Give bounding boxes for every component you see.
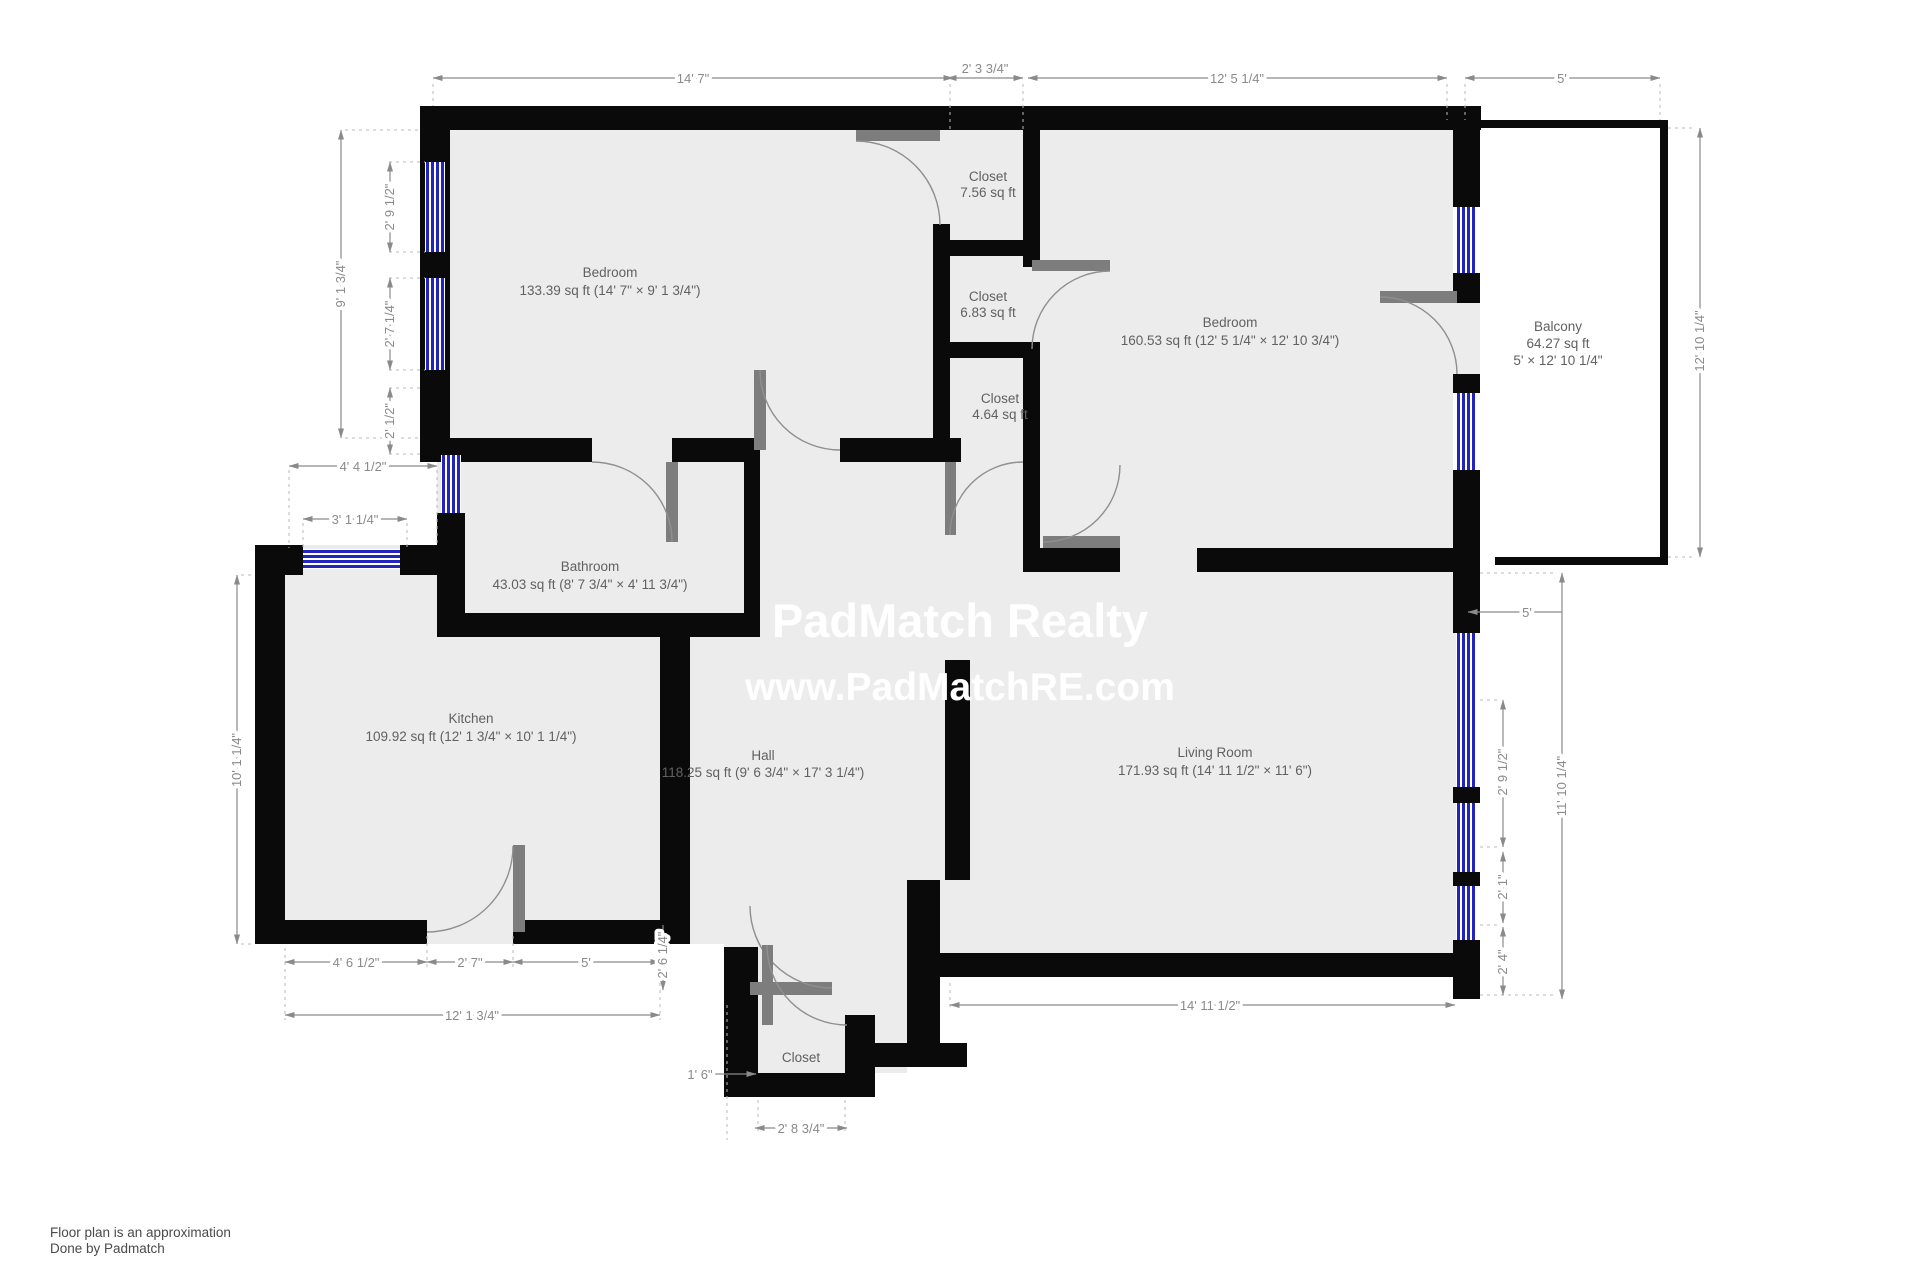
window-icon: [1456, 886, 1477, 940]
dim-right-living-h: 11' 10 1/4": [1554, 755, 1569, 816]
svg-text:Closet: Closet: [969, 169, 1008, 184]
dim-bottom-kitchen1: 4' 6 1/2": [333, 955, 380, 970]
window-icon: [441, 455, 461, 513]
footer: Floor plan is an approximation Done by P…: [50, 1225, 231, 1256]
dim-right-win3: 2' 4": [1495, 949, 1510, 975]
watermark-line1: PadMatch Realty: [772, 594, 1148, 647]
watermark-line2: www.PadMatchRE.com: [744, 666, 1175, 709]
dim-right-balcony-w: 5': [1522, 605, 1532, 620]
room-label-entry-closet: Closet: [782, 1050, 821, 1065]
dim-bottom-kitchen-total: 12' 1 3/4": [445, 1008, 499, 1023]
svg-text:Balcony: Balcony: [1534, 319, 1582, 334]
svg-text:109.92 sq ft (12' 1 3/4" × 10': 109.92 sq ft (12' 1 3/4" × 10' 1 1/4"): [365, 729, 576, 744]
svg-text:Closet: Closet: [782, 1050, 821, 1065]
dim-bottom-closet: 2' 8 3/4": [778, 1121, 825, 1136]
window-icon: [425, 278, 445, 370]
svg-text:133.39 sq ft (14' 7" × 9' 1 3/: 133.39 sq ft (14' 7" × 9' 1 3/4"): [520, 283, 701, 298]
svg-text:5' × 12' 10 1/4": 5' × 12' 10 1/4": [1513, 353, 1602, 368]
window-icon: [425, 162, 445, 252]
dim-left-bedroom1-h: 9' 1 3/4": [333, 260, 348, 307]
svg-text:Closet: Closet: [981, 391, 1020, 406]
dim-bottom-step: 2' 6 1/4": [655, 931, 670, 978]
svg-text:43.03 sq ft (8' 7 3/4" × 4' 11: 43.03 sq ft (8' 7 3/4" × 4' 11 3/4"): [493, 577, 688, 592]
dim-right-balcony-h: 12' 10 1/4": [1692, 310, 1707, 372]
svg-text:6.83 sq ft: 6.83 sq ft: [960, 305, 1016, 320]
floor-plan-canvas: 14' 7" 2' 3 3/4" 12' 5 1/4" 5' 9' 1 3/4"…: [0, 0, 1920, 1280]
dim-left-win1: 2' 9 1/2": [382, 183, 397, 230]
window-icon: [303, 549, 400, 569]
svg-text:171.93 sq ft (14' 11 1/2" × 11: 171.93 sq ft (14' 11 1/2" × 11' 6"): [1118, 763, 1312, 778]
svg-text:118.25 sq ft (9' 6 3/4" × 17': 118.25 sq ft (9' 6 3/4" × 17' 3 1/4"): [662, 765, 865, 780]
dim-left-alcove2: 3' 1 1/4": [332, 512, 379, 527]
svg-text:7.56 sq ft: 7.56 sq ft: [960, 185, 1016, 200]
svg-text:Bedroom: Bedroom: [1203, 315, 1258, 330]
dim-left-win2: 2' 7 1/4": [382, 300, 397, 347]
dim-bottom-entry: 1' 6": [687, 1067, 713, 1082]
window-icon: [1456, 207, 1477, 273]
dim-top-bedroom2: 12' 5 1/4": [1210, 71, 1264, 86]
svg-text:Hall: Hall: [751, 748, 774, 763]
dim-right-win2: 2' 1": [1495, 874, 1510, 900]
dim-top-closet: 2' 3 3/4": [962, 61, 1009, 76]
dim-right-win1: 2' 9 1/2": [1495, 748, 1510, 795]
dim-top-balcony: 5': [1557, 71, 1567, 86]
window-icon: [1456, 803, 1477, 872]
svg-text:160.53 sq ft (12' 5 1/4" × 12': 160.53 sq ft (12' 5 1/4" × 12' 10 3/4"): [1121, 333, 1340, 348]
window-icon: [1456, 393, 1477, 470]
dim-left-win3: 2' 1/2": [382, 403, 397, 439]
dim-top-bedroom1: 14' 7": [677, 71, 710, 86]
dim-bottom-living: 14' 11 1/2": [1180, 998, 1241, 1013]
dim-left-kitchen-h: 10' 1 1/4": [229, 733, 244, 787]
dim-bottom-kitchen2: 2' 7": [457, 955, 483, 970]
svg-text:64.27 sq ft: 64.27 sq ft: [1526, 336, 1589, 351]
svg-text:Bedroom: Bedroom: [583, 265, 638, 280]
svg-text:4.64 sq ft: 4.64 sq ft: [972, 407, 1028, 422]
svg-text:Bathroom: Bathroom: [561, 559, 620, 574]
svg-text:Kitchen: Kitchen: [448, 711, 493, 726]
svg-text:Closet: Closet: [969, 289, 1008, 304]
footer-line1: Floor plan is an approximation: [50, 1225, 231, 1240]
svg-text:Living Room: Living Room: [1177, 745, 1252, 760]
window-icon: [1456, 633, 1477, 787]
dim-bottom-kitchen3: 5': [581, 955, 591, 970]
dim-left-alcove1: 4' 4 1/2": [340, 459, 387, 474]
footer-line2: Done by Padmatch: [50, 1241, 165, 1256]
